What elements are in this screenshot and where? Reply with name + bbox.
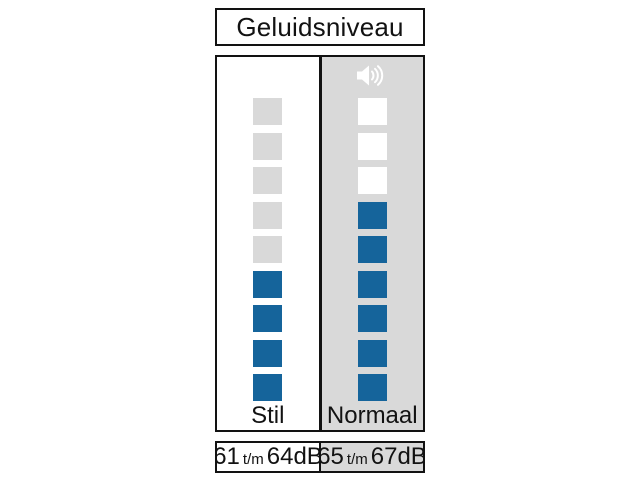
sound-level-widget: Geluidsniveau Stil Normaal [0, 0, 640, 480]
level-square-filled [253, 271, 282, 298]
level-square-empty [358, 167, 387, 194]
level-square-empty [253, 236, 282, 263]
range-unit-stil: dB [293, 443, 319, 471]
range-high-stil: 64 [267, 443, 294, 471]
range-low-stil: 61 [217, 443, 240, 471]
level-square-empty [253, 167, 282, 194]
level-square-filled [358, 202, 387, 229]
level-square-filled [253, 305, 282, 332]
range-unit-normaal: dB [397, 443, 423, 471]
level-square-filled [358, 271, 387, 298]
level-square-filled [253, 340, 282, 367]
level-square-empty [358, 98, 387, 125]
speaker-icon [355, 63, 389, 93]
column-label-normaal: Normaal [327, 401, 418, 430]
level-square-empty [253, 202, 282, 229]
level-square-empty [358, 133, 387, 160]
range-separator-normaal: t/m [347, 446, 368, 471]
level-square-filled [358, 340, 387, 367]
level-square-empty [253, 98, 282, 125]
range-cell-normaal: 65 t/m 67 dB [319, 443, 423, 471]
page-title-text: Geluidsniveau [236, 12, 403, 43]
level-square-filled [358, 305, 387, 332]
range-row: 61 t/m 64 dB 65 t/m 67 dB [215, 441, 425, 473]
icon-slot-normaal [355, 57, 389, 98]
level-square-filled [358, 374, 387, 401]
range-high-normaal: 67 [371, 443, 398, 471]
meter-squares-normaal [358, 98, 387, 401]
column-stil: Stil [217, 57, 319, 430]
meter-panel: Stil Normaal [215, 55, 425, 432]
range-cell-stil: 61 t/m 64 dB [217, 443, 319, 471]
column-label-stil: Stil [251, 401, 284, 430]
range-separator-stil: t/m [243, 446, 264, 471]
column-normaal: Normaal [319, 57, 424, 430]
level-square-filled [253, 374, 282, 401]
level-square-empty [253, 133, 282, 160]
meter-squares-stil [253, 98, 282, 401]
level-square-filled [358, 236, 387, 263]
page-title: Geluidsniveau [215, 8, 425, 46]
range-low-normaal: 65 [319, 443, 344, 471]
